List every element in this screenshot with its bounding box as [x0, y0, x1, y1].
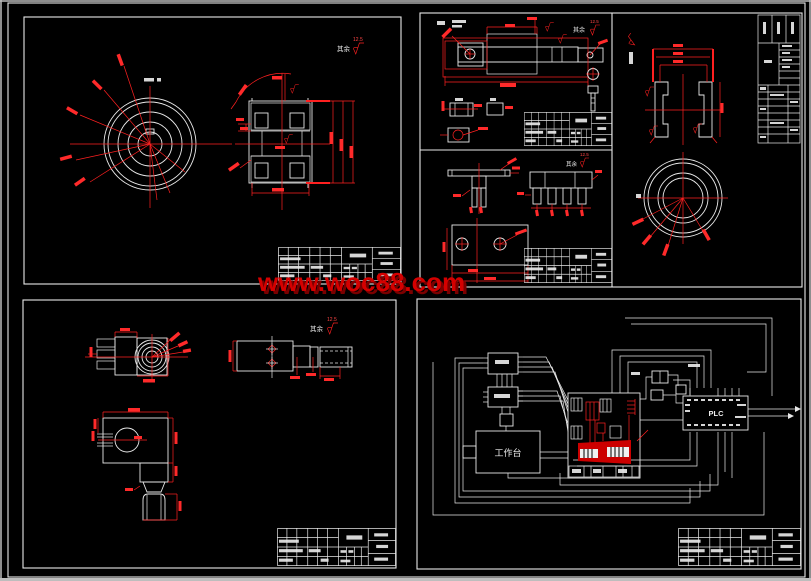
driver-box-2	[483, 387, 523, 414]
bushing-front-view	[632, 152, 728, 256]
roughness-value-label: 12.5	[590, 19, 599, 24]
sheet-pulley-drawing: 其余 12.5	[24, 17, 401, 284]
roughness-prefix-label: 其余	[337, 44, 351, 53]
stepped-shaft-view	[229, 336, 353, 381]
title-block-bl	[277, 528, 396, 566]
roughness-prefix-label: 其余	[573, 26, 585, 34]
terminal-center-box	[568, 393, 648, 478]
plc-box: PLC	[683, 388, 748, 430]
parts-list-table	[758, 15, 800, 143]
roughness-symbol-tr: 其余 12.5	[573, 19, 600, 35]
pulley-front-view	[60, 54, 232, 208]
sheet-parts-drawings: 其余 12.5 其余 12.5	[420, 13, 802, 287]
bushing-section-view	[625, 33, 723, 145]
l-block-part-view	[92, 408, 182, 520]
driver-box-1	[483, 353, 523, 387]
roughness-value-label: 12.5	[580, 152, 589, 157]
title-block-tr1	[524, 112, 612, 146]
roughness-symbol-tl: 其余 12.5	[337, 37, 364, 54]
roughness-symbol-bl: 其余 12.5	[310, 317, 338, 334]
workbench-label: 工作台	[494, 447, 521, 458]
sheet-plc-schematic: 工作台	[417, 299, 801, 569]
pulley-section-view	[228, 73, 355, 210]
small-pin-parts	[440, 98, 513, 142]
fork-part-views: 其余 12.5	[448, 152, 602, 216]
roughness-value-label: 12.5	[353, 37, 363, 43]
connector-box	[500, 414, 513, 426]
plc-label: PLC	[709, 409, 725, 418]
title-block-tr2	[524, 248, 612, 283]
roughness-value-label: 12.5	[327, 317, 337, 323]
cad-viewer-screen: 其余 12.5	[0, 0, 811, 581]
watermark: www.woc88.com	[258, 267, 465, 298]
roughness-prefix-label: 其余	[566, 160, 578, 168]
sheet-shaft-parts: 其余 12.5	[23, 300, 396, 568]
roughness-prefix-label: 其余	[310, 324, 324, 333]
title-block-br	[678, 528, 801, 566]
eye-end-part-view	[85, 328, 191, 383]
workbench-box: 工作台	[463, 431, 540, 473]
